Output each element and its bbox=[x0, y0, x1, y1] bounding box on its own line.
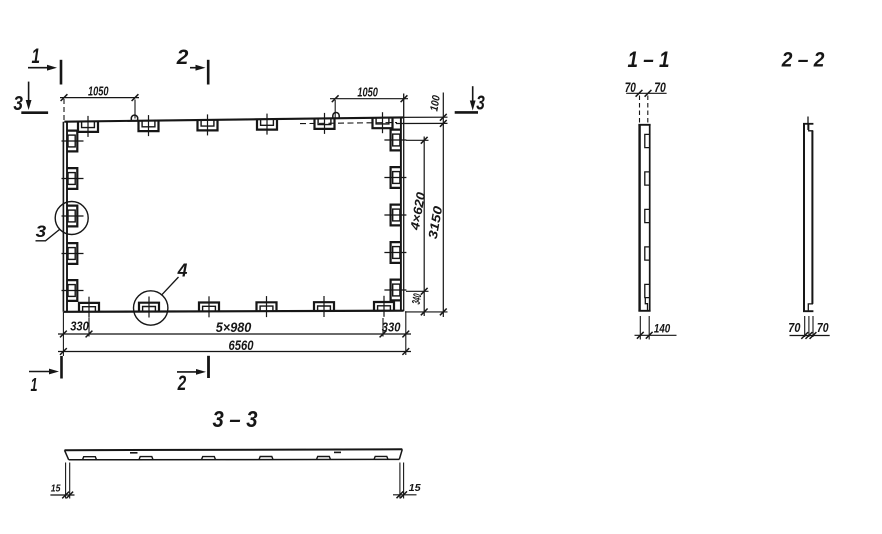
svg-text:100: 100 bbox=[428, 94, 443, 113]
svg-text:2 – 2: 2 – 2 bbox=[781, 49, 825, 72]
svg-text:5×980: 5×980 bbox=[216, 320, 252, 335]
svg-text:1050: 1050 bbox=[88, 84, 109, 98]
svg-text:70: 70 bbox=[817, 321, 829, 335]
svg-text:330: 330 bbox=[70, 320, 89, 334]
svg-text:15: 15 bbox=[51, 482, 61, 494]
svg-text:70: 70 bbox=[788, 321, 800, 335]
svg-text:4×620: 4×620 bbox=[408, 191, 429, 232]
svg-text:2: 2 bbox=[176, 46, 189, 69]
svg-text:1: 1 bbox=[31, 374, 38, 395]
svg-text:70: 70 bbox=[654, 80, 666, 95]
svg-text:140: 140 bbox=[654, 321, 671, 335]
svg-text:15: 15 bbox=[409, 482, 421, 494]
svg-text:2: 2 bbox=[177, 371, 186, 395]
svg-text:3150: 3150 bbox=[426, 205, 446, 240]
svg-text:1: 1 bbox=[32, 45, 41, 68]
svg-text:6560: 6560 bbox=[229, 337, 254, 353]
svg-text:1050: 1050 bbox=[357, 86, 378, 100]
svg-text:3 – 3: 3 – 3 bbox=[213, 406, 258, 432]
svg-text:4: 4 bbox=[177, 259, 188, 280]
svg-text:340: 340 bbox=[411, 293, 425, 306]
svg-text:330: 330 bbox=[382, 321, 401, 335]
svg-text:3: 3 bbox=[36, 222, 47, 241]
svg-text:70: 70 bbox=[625, 80, 637, 95]
svg-text:1 – 1: 1 – 1 bbox=[628, 47, 670, 72]
